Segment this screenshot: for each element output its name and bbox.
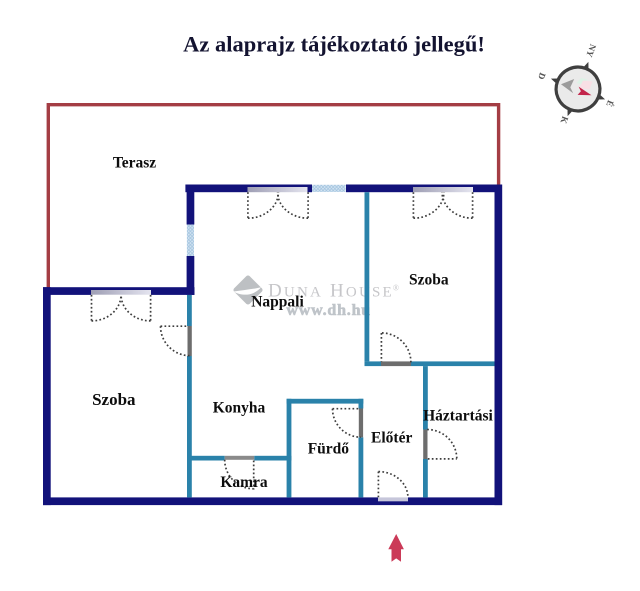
svg-text:Szoba: Szoba xyxy=(92,390,136,409)
svg-text:Előtér: Előtér xyxy=(371,430,412,447)
svg-text:Nappali: Nappali xyxy=(251,294,304,311)
svg-text:Kamra: Kamra xyxy=(220,474,268,491)
svg-text:Az alaprajz tájékoztató jelleg: Az alaprajz tájékoztató jellegű! xyxy=(183,32,485,57)
svg-text:Háztartási: Háztartási xyxy=(423,408,493,425)
svg-text:Szoba: Szoba xyxy=(409,272,449,289)
svg-text:Konyha: Konyha xyxy=(213,400,266,417)
svg-text:Fürdő: Fürdő xyxy=(308,441,350,458)
svg-text:Terasz: Terasz xyxy=(113,155,156,172)
